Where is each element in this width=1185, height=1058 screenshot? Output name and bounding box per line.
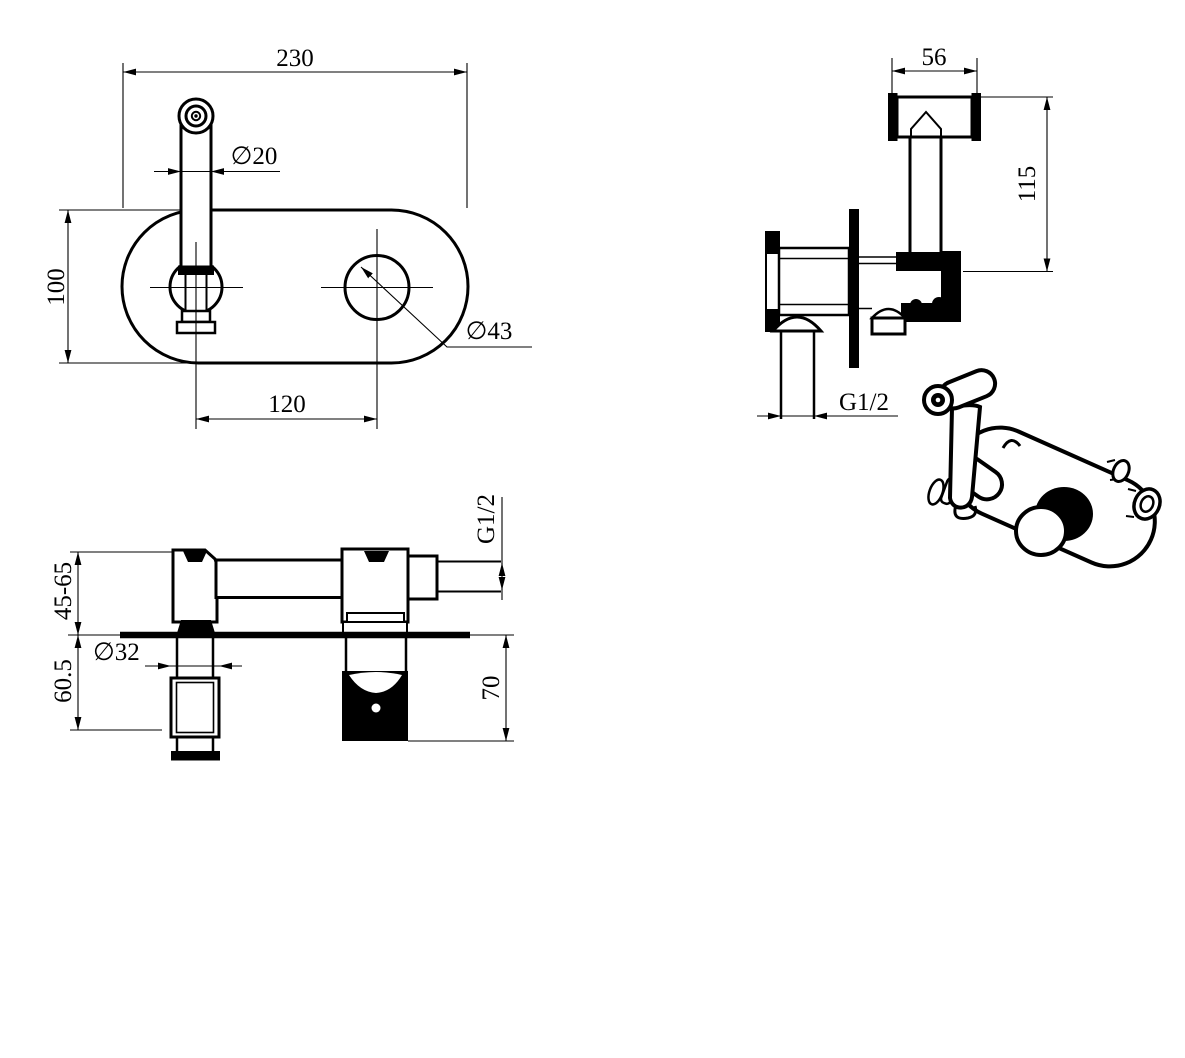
dim-embed-depth: 70 xyxy=(478,676,505,701)
valve-cap-top xyxy=(766,232,779,254)
valve-collar-upper xyxy=(347,613,404,622)
dim-valve-diameter: ∅32 xyxy=(93,639,140,666)
dim-plate-width: 230 xyxy=(276,45,314,72)
inlet-pipe xyxy=(781,331,814,419)
connecting-bar xyxy=(216,560,342,598)
spout-shank-lower xyxy=(177,737,213,751)
ext-lines-230 xyxy=(123,63,467,208)
knob-face xyxy=(1016,507,1066,555)
dim-handle-hole-diameter: ∅43 xyxy=(466,318,513,345)
valve-shank xyxy=(346,638,406,676)
spout-housing xyxy=(171,678,219,737)
drawing-sheet: 230 ∅43 120 100 ∅20 xyxy=(0,0,1185,1058)
holder-top-arm xyxy=(896,252,942,271)
plate-bump-3d xyxy=(1003,440,1020,448)
perspective-view xyxy=(924,366,1169,581)
inlet-dome xyxy=(773,317,821,331)
sprayer-head-cap-left xyxy=(888,93,898,141)
dim-mount-depth-range: 45-65 xyxy=(50,562,77,620)
spout-base-flange xyxy=(171,751,220,761)
holder-bottom-arm xyxy=(901,303,961,322)
dim-plate-height: 100 xyxy=(43,268,70,306)
front-view: 230 ∅43 120 100 ∅20 xyxy=(43,45,532,429)
sprayer-side-view: 56 115 G1/2 xyxy=(757,44,1053,419)
sprayer-head-cap-right xyxy=(972,93,982,141)
outlet-block xyxy=(872,318,905,334)
spout-shank xyxy=(177,638,213,678)
technical-drawing: 230 ∅43 120 100 ∅20 xyxy=(0,0,1185,1058)
dim-head-width: 56 xyxy=(922,44,947,71)
sprayer-tube xyxy=(910,137,941,259)
holder-bump-1 xyxy=(910,299,922,311)
mixer-side-view: 45-65 60.5 ∅32 70 G1/2 xyxy=(50,494,514,761)
valve-embed-hole xyxy=(372,704,381,713)
dim-hole-spacing: 120 xyxy=(268,391,306,418)
dim-outlet-thread: G1/2 xyxy=(473,494,500,544)
dim-spout-diameter: ∅20 xyxy=(231,143,278,170)
holder-bump-2 xyxy=(932,297,946,311)
wall-flange xyxy=(849,209,859,368)
sprayer-cap-dot-3d xyxy=(936,398,941,403)
outlet-stub xyxy=(408,556,437,599)
hose-lines xyxy=(859,257,898,309)
spout-collar xyxy=(177,620,215,633)
outlet-pipe xyxy=(437,562,501,592)
dim-inlet-thread: G1/2 xyxy=(839,389,889,416)
sprayer-head xyxy=(897,97,972,137)
spout-outlet-dot xyxy=(194,114,197,117)
valve-collar-lower xyxy=(343,622,407,633)
dim-sprayer-height: 115 xyxy=(1014,166,1041,203)
dim-lower-depth: 60.5 xyxy=(50,659,77,703)
